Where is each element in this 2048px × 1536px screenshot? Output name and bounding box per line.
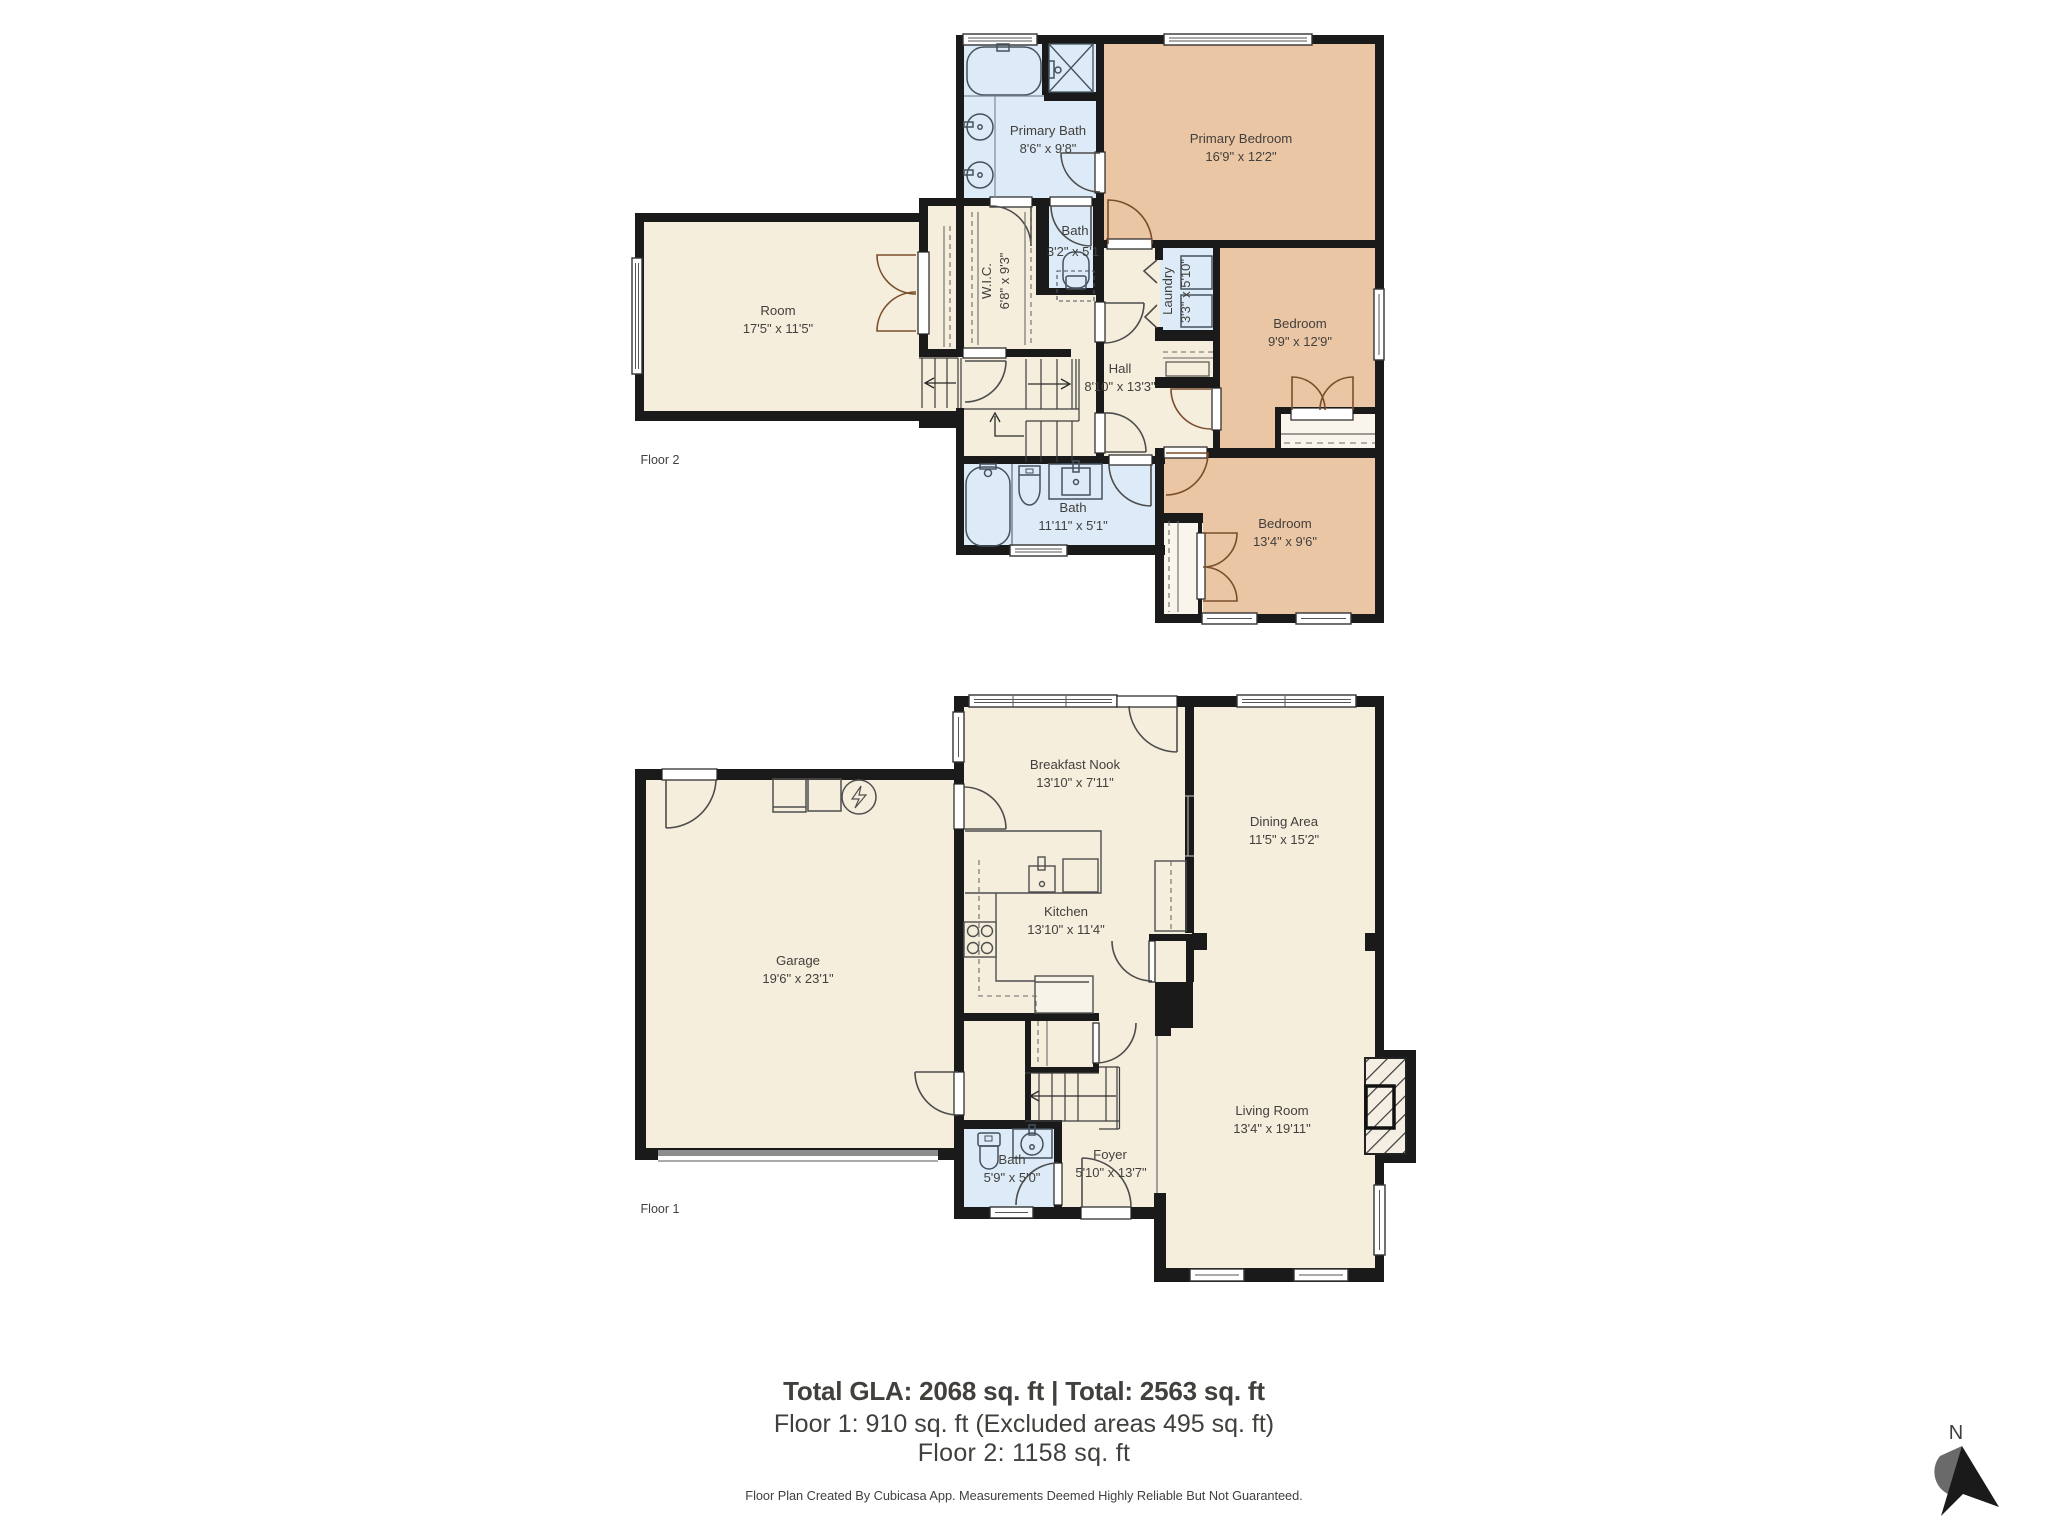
svg-text:11'11" x 5'1": 11'11" x 5'1" bbox=[1038, 518, 1108, 533]
svg-text:Bath: Bath bbox=[998, 1152, 1025, 1167]
svg-text:6'8" x 9'3": 6'8" x 9'3" bbox=[997, 252, 1012, 309]
svg-text:Living Room: Living Room bbox=[1235, 1103, 1308, 1118]
svg-text:19'6" x 23'1": 19'6" x 23'1" bbox=[762, 971, 834, 986]
svg-text:11'5" x 15'2": 11'5" x 15'2" bbox=[1249, 832, 1320, 847]
svg-text:Laundry: Laundry bbox=[1160, 267, 1175, 315]
svg-text:Bedroom: Bedroom bbox=[1258, 516, 1312, 531]
svg-text:Garage: Garage bbox=[776, 953, 820, 968]
svg-text:Primary Bedroom: Primary Bedroom bbox=[1190, 131, 1293, 146]
svg-text:N: N bbox=[1949, 1422, 1963, 1444]
svg-text:13'4" x 9'6": 13'4" x 9'6" bbox=[1253, 534, 1317, 549]
svg-text:Breakfast Nook: Breakfast Nook bbox=[1030, 757, 1121, 772]
svg-text:Floor 2: 1158 sq. ft: Floor 2: 1158 sq. ft bbox=[918, 1439, 1131, 1467]
svg-text:Room: Room bbox=[760, 303, 795, 318]
svg-text:Bath: Bath bbox=[1059, 500, 1086, 515]
svg-text:Total GLA: 2068 sq. ft | Total: Total GLA: 2068 sq. ft | Total: 2563 sq.… bbox=[783, 1376, 1265, 1406]
svg-text:Floor Plan Created By Cubicasa: Floor Plan Created By Cubicasa App. Meas… bbox=[745, 1488, 1302, 1503]
svg-text:13'4" x 19'11": 13'4" x 19'11" bbox=[1233, 1121, 1311, 1136]
svg-text:Kitchen: Kitchen bbox=[1044, 904, 1088, 919]
svg-text:Hall: Hall bbox=[1109, 361, 1132, 376]
svg-text:Foyer: Foyer bbox=[1093, 1147, 1127, 1162]
svg-text:3'2" x 5'1: 3'2" x 5'1 bbox=[1047, 244, 1099, 259]
svg-text:Bath: Bath bbox=[1061, 223, 1088, 238]
svg-text:Floor 1: Floor 1 bbox=[641, 1202, 680, 1216]
svg-text:17'5" x 11'5": 17'5" x 11'5" bbox=[743, 321, 814, 336]
svg-text:8'6" x 9'8": 8'6" x 9'8" bbox=[1020, 141, 1077, 156]
svg-text:Primary Bath: Primary Bath bbox=[1010, 123, 1086, 138]
svg-text:9'9" x 12'9": 9'9" x 12'9" bbox=[1268, 334, 1332, 349]
svg-text:Dining Area: Dining Area bbox=[1250, 814, 1319, 829]
svg-text:Floor 2: Floor 2 bbox=[641, 453, 680, 467]
svg-text:3'3" x 5'10": 3'3" x 5'10" bbox=[1178, 259, 1193, 323]
svg-text:16'9" x 12'2": 16'9" x 12'2" bbox=[1205, 149, 1277, 164]
svg-text:5'10" x 13'7": 5'10" x 13'7" bbox=[1075, 1165, 1147, 1180]
svg-text:Bedroom: Bedroom bbox=[1273, 316, 1327, 331]
svg-text:13'10" x 11'4": 13'10" x 11'4" bbox=[1027, 922, 1105, 937]
svg-text:8'10" x 13'3": 8'10" x 13'3" bbox=[1084, 379, 1156, 394]
svg-text:5'9" x 5'0": 5'9" x 5'0" bbox=[984, 1170, 1041, 1185]
svg-text:W.I.C.: W.I.C. bbox=[979, 263, 994, 299]
svg-text:13'10" x 7'11": 13'10" x 7'11" bbox=[1036, 775, 1114, 790]
svg-text:Floor 1: 910 sq. ft (Excluded: Floor 1: 910 sq. ft (Excluded areas 495 … bbox=[774, 1410, 1274, 1438]
